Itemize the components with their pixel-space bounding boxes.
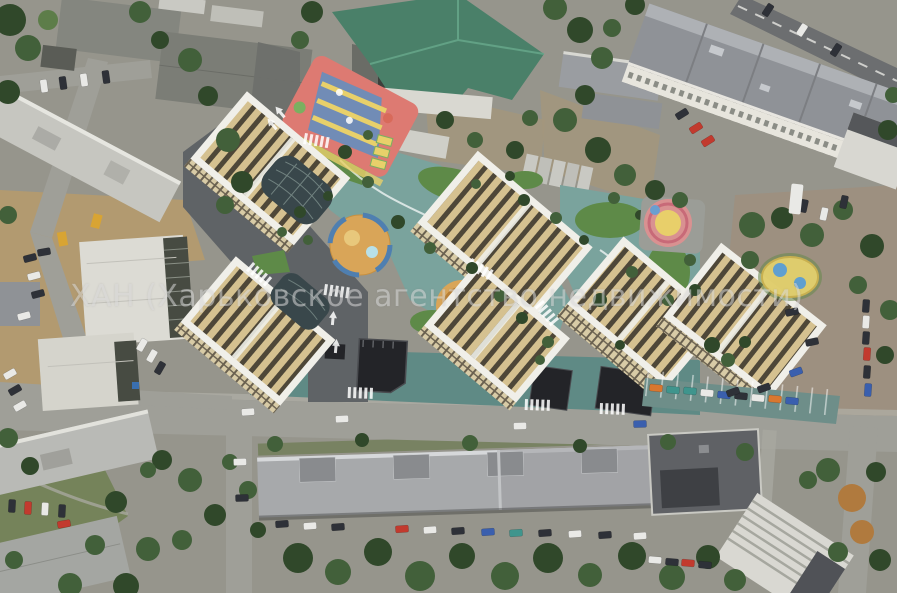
aerial-masterplan-photo: ХАН (Харьковское агентство недвижимости): [0, 0, 897, 593]
watermark-text: ХАН (Харьковское агентство недвижимости): [70, 279, 804, 314]
existing-playground-1: [638, 196, 706, 254]
playground-sand-1: [330, 215, 390, 275]
